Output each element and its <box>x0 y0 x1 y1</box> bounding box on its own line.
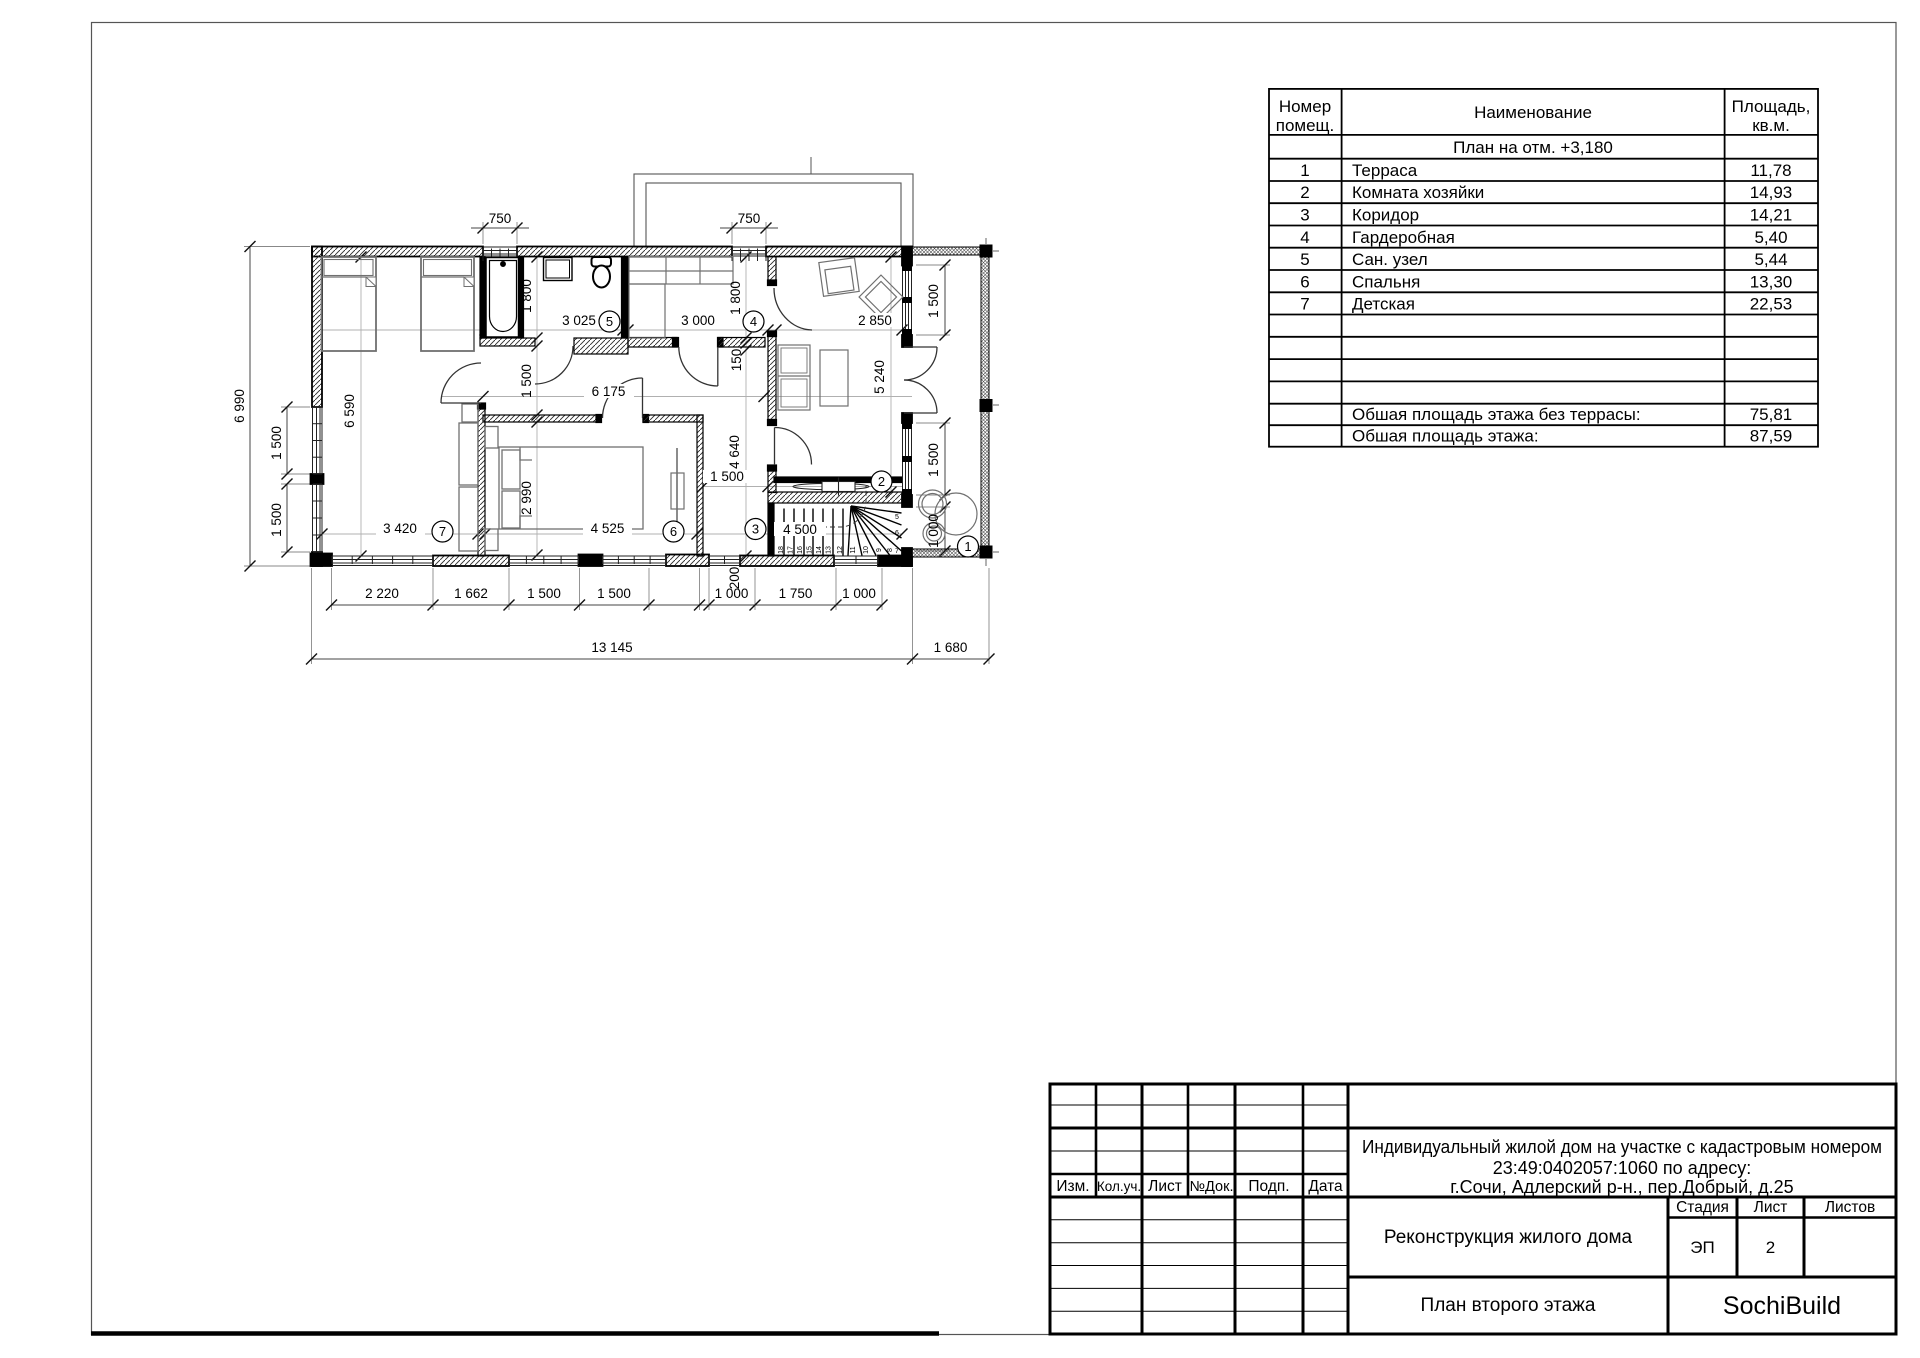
svg-text:План на отм. +3,180: План на отм. +3,180 <box>1453 138 1613 157</box>
svg-text:3 420: 3 420 <box>383 521 417 536</box>
svg-text:1 000: 1 000 <box>842 586 876 601</box>
svg-text:6 590: 6 590 <box>342 394 357 428</box>
svg-text:6 175: 6 175 <box>592 384 626 399</box>
svg-text:5: 5 <box>1300 250 1309 269</box>
svg-text:2: 2 <box>1300 183 1309 202</box>
svg-text:Коридор: Коридор <box>1352 206 1419 225</box>
svg-text:87,59: 87,59 <box>1750 427 1793 446</box>
svg-text:1 750: 1 750 <box>779 586 813 601</box>
svg-text:1 662: 1 662 <box>454 586 488 601</box>
svg-text:Реконструкция жилого дома: Реконструкция жилого дома <box>1384 1227 1633 1248</box>
svg-text:Детская: Детская <box>1352 295 1415 314</box>
svg-text:5: 5 <box>606 314 613 329</box>
svg-text:18: 18 <box>778 546 785 554</box>
svg-text:1: 1 <box>1300 161 1309 180</box>
svg-text:5,40: 5,40 <box>1754 228 1787 247</box>
svg-text:4 500: 4 500 <box>783 522 817 537</box>
svg-text:23:49:0402057:1060 по адресу:: 23:49:0402057:1060 по адресу: <box>1493 1158 1751 1178</box>
svg-text:Спальня: Спальня <box>1352 272 1420 291</box>
svg-text:1 500: 1 500 <box>926 443 941 477</box>
svg-text:9: 9 <box>876 548 883 552</box>
svg-text:1 500: 1 500 <box>597 586 631 601</box>
svg-text:14,21: 14,21 <box>1750 206 1793 225</box>
svg-text:Кол.уч.: Кол.уч. <box>1097 1179 1141 1194</box>
svg-text:5: 5 <box>895 514 899 521</box>
svg-text:5,44: 5,44 <box>1754 250 1787 269</box>
svg-text:Лист: Лист <box>1148 1178 1182 1195</box>
svg-text:14: 14 <box>816 546 823 554</box>
svg-text:14,93: 14,93 <box>1750 183 1793 202</box>
svg-text:22,53: 22,53 <box>1750 295 1793 314</box>
svg-text:75,81: 75,81 <box>1750 405 1793 424</box>
svg-text:Площадь,: Площадь, <box>1732 97 1811 116</box>
svg-text:10: 10 <box>863 546 870 554</box>
svg-text:Дата: Дата <box>1308 1178 1343 1195</box>
svg-text:SochiBuild: SochiBuild <box>1723 1292 1841 1320</box>
svg-text:6: 6 <box>895 530 899 537</box>
svg-text:13 145: 13 145 <box>591 640 632 655</box>
svg-text:17: 17 <box>788 546 795 554</box>
svg-text:г.Сочи, Адлерский р-н., пер.До: г.Сочи, Адлерский р-н., пер.Добрый, д.25 <box>1450 1177 1793 1197</box>
svg-text:4: 4 <box>1300 228 1309 247</box>
svg-text:4 640: 4 640 <box>727 435 742 469</box>
svg-text:кв.м.: кв.м. <box>1752 116 1790 135</box>
svg-text:5 240: 5 240 <box>872 360 887 394</box>
svg-text:1: 1 <box>964 539 971 554</box>
svg-text:1 500: 1 500 <box>269 426 284 460</box>
svg-text:3 025: 3 025 <box>562 313 596 328</box>
svg-text:750: 750 <box>738 211 761 226</box>
svg-text:3 000: 3 000 <box>681 313 715 328</box>
svg-text:2 220: 2 220 <box>365 586 399 601</box>
svg-text:2: 2 <box>878 474 885 489</box>
svg-text:Сан. узел: Сан. узел <box>1352 250 1428 269</box>
svg-text:1 800: 1 800 <box>519 279 534 313</box>
svg-text:Наименование: Наименование <box>1474 103 1592 122</box>
svg-text:1 800: 1 800 <box>728 281 743 315</box>
svg-text:№Док.: №Док. <box>1190 1179 1234 1195</box>
svg-text:Терраса: Терраса <box>1352 161 1418 180</box>
svg-text:1 000: 1 000 <box>926 514 941 548</box>
svg-text:4: 4 <box>750 314 757 329</box>
svg-text:1 500: 1 500 <box>926 284 941 318</box>
svg-text:11,78: 11,78 <box>1750 161 1791 180</box>
svg-text:1 500: 1 500 <box>710 469 744 484</box>
svg-text:7: 7 <box>1300 295 1309 314</box>
svg-text:2: 2 <box>1766 1238 1775 1257</box>
svg-text:7: 7 <box>439 524 446 539</box>
svg-text:150: 150 <box>729 349 744 372</box>
svg-text:Комната хозяйки: Комната хозяйки <box>1352 183 1484 202</box>
svg-text:Гардеробная: Гардеробная <box>1352 228 1455 247</box>
svg-text:6 990: 6 990 <box>232 389 247 423</box>
svg-text:2 850: 2 850 <box>858 313 892 328</box>
svg-text:Изм.: Изм. <box>1056 1178 1089 1195</box>
svg-text:Номер: Номер <box>1279 97 1331 116</box>
svg-text:8: 8 <box>887 548 894 552</box>
svg-text:6: 6 <box>670 524 677 539</box>
svg-text:13,30: 13,30 <box>1750 272 1793 291</box>
svg-text:11: 11 <box>850 546 857 553</box>
svg-text:Лист: Лист <box>1754 1199 1788 1216</box>
svg-text:Индивидуальный жилой дом на уч: Индивидуальный жилой дом на участке с ка… <box>1362 1137 1882 1157</box>
svg-text:750: 750 <box>489 211 512 226</box>
svg-text:помещ.: помещ. <box>1276 116 1335 135</box>
svg-text:6: 6 <box>1300 272 1309 291</box>
svg-text:13: 13 <box>826 546 833 554</box>
svg-text:16: 16 <box>797 546 804 554</box>
svg-text:3: 3 <box>752 522 759 537</box>
svg-text:Подп.: Подп. <box>1248 1178 1289 1195</box>
svg-text:Листов: Листов <box>1825 1199 1875 1216</box>
svg-text:Обшая площадь этажа без террас: Обшая площадь этажа без террасы: <box>1352 405 1641 424</box>
svg-text:Обшая площадь этажа:: Обшая площадь этажа: <box>1352 427 1539 446</box>
svg-text:200: 200 <box>727 567 742 590</box>
svg-text:2 990: 2 990 <box>519 481 534 515</box>
svg-text:3: 3 <box>1300 206 1309 225</box>
svg-text:4 525: 4 525 <box>591 521 625 536</box>
svg-text:1 500: 1 500 <box>519 364 534 398</box>
svg-text:15: 15 <box>807 546 814 554</box>
svg-text:7: 7 <box>895 548 899 555</box>
svg-text:План второго этажа: План второго этажа <box>1421 1295 1596 1316</box>
svg-text:1 680: 1 680 <box>934 640 968 655</box>
svg-text:ЭП: ЭП <box>1690 1238 1714 1257</box>
svg-text:1 500: 1 500 <box>269 503 284 537</box>
svg-text:12: 12 <box>837 546 844 554</box>
svg-text:1 500: 1 500 <box>527 586 561 601</box>
svg-text:Стадия: Стадия <box>1676 1199 1729 1216</box>
